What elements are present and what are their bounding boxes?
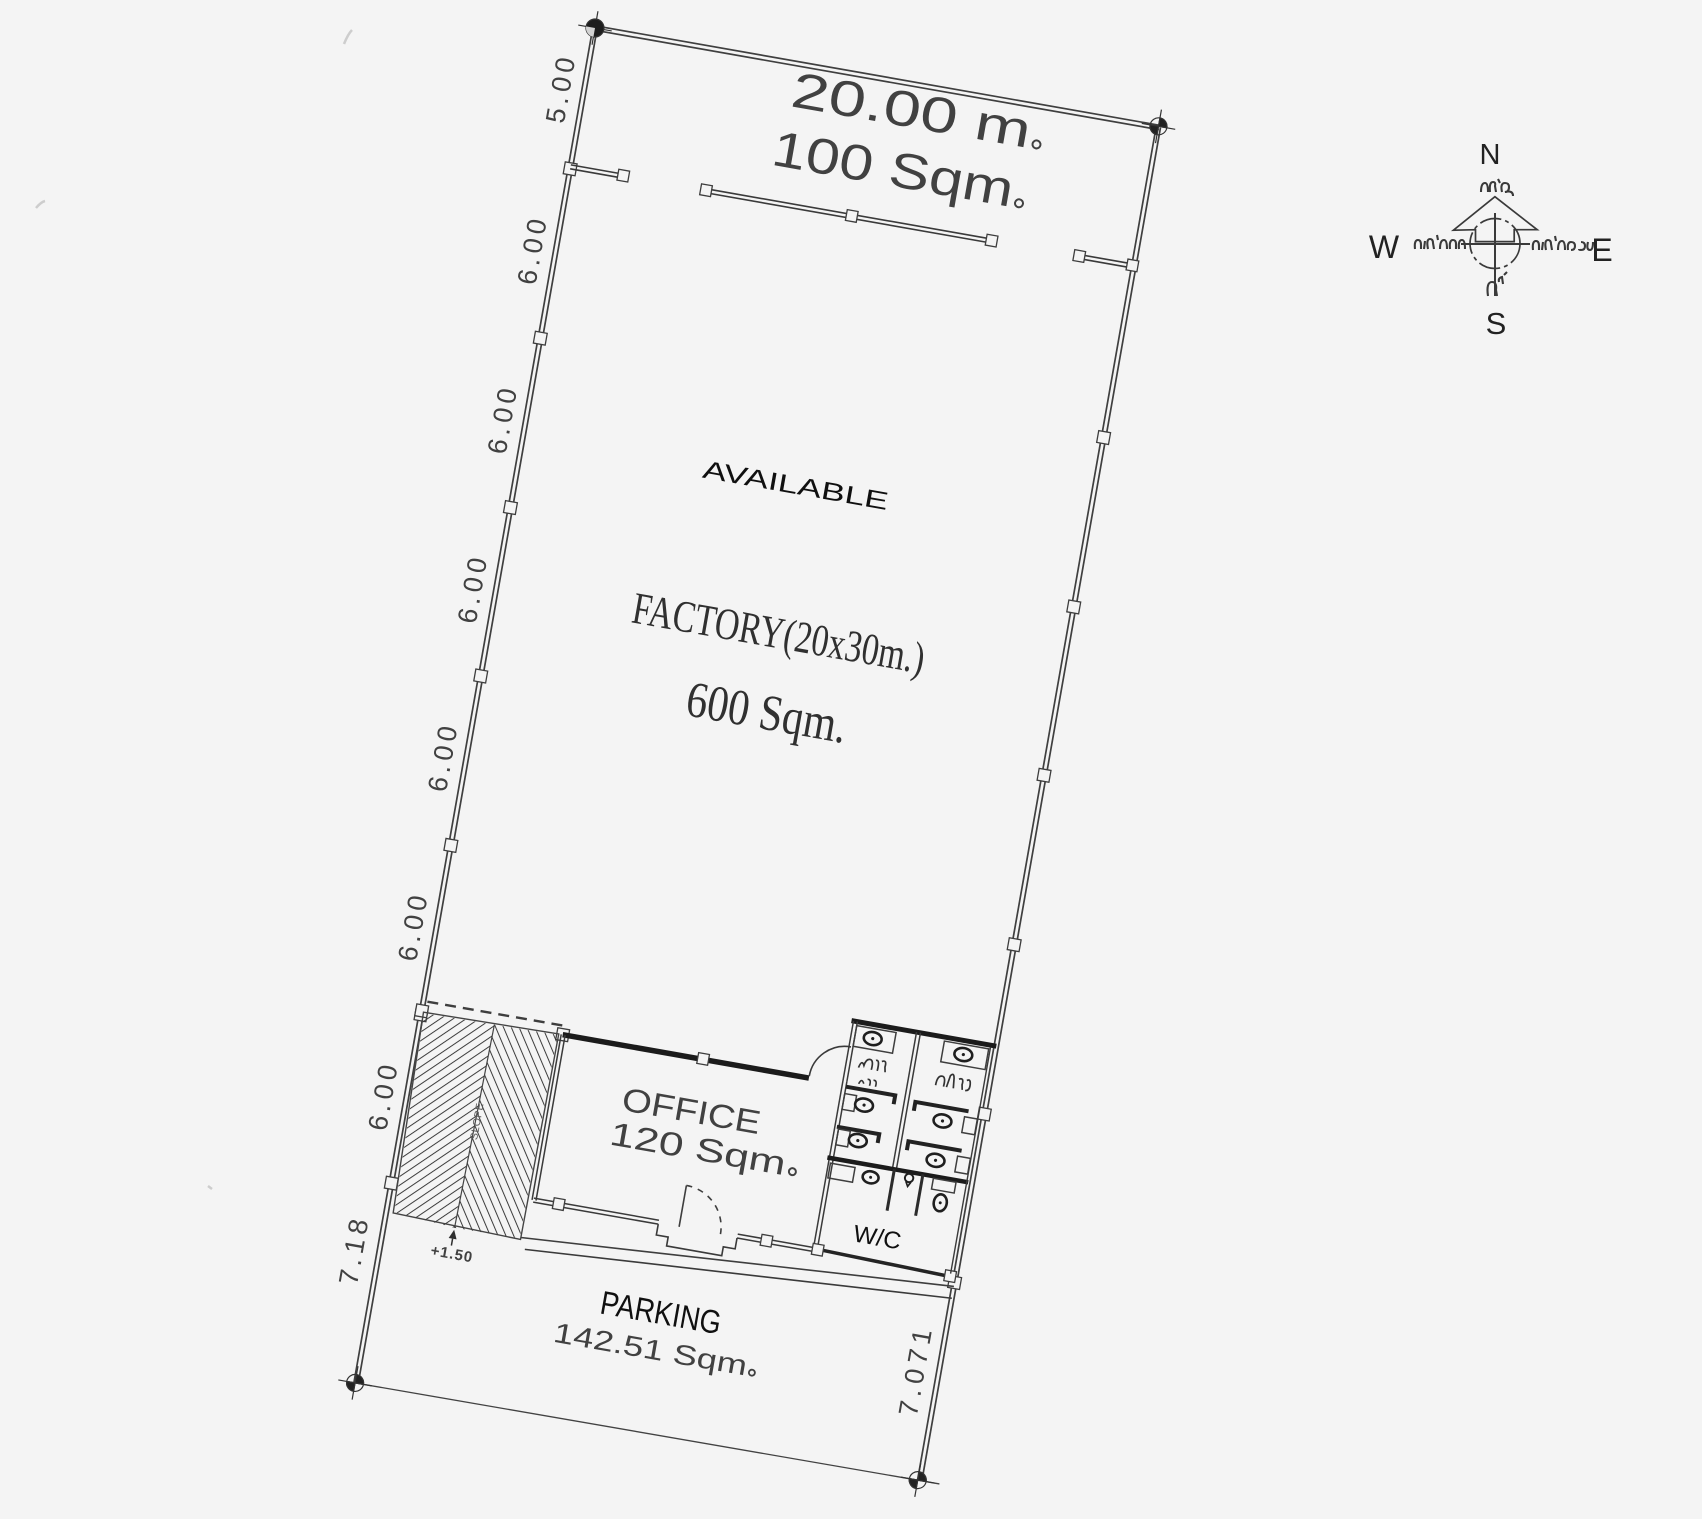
svg-text:E: E [1591,232,1612,268]
svg-text:N: N [1480,139,1501,171]
svg-text:S: S [1486,306,1507,341]
svg-text:W: W [1369,229,1400,265]
